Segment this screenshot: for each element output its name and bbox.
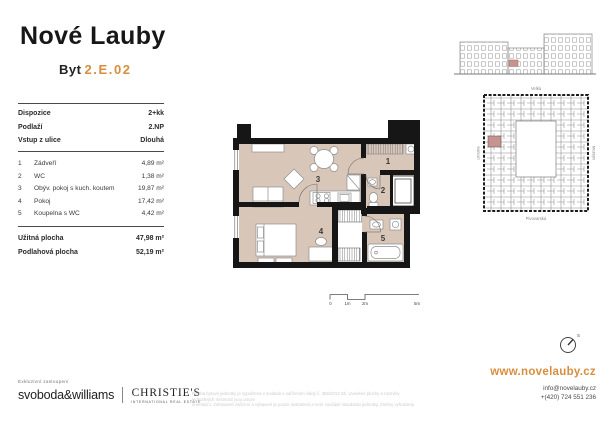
total-value: 52,19 m² — [136, 249, 164, 256]
email-link[interactable]: info@novelauby.cz — [436, 385, 596, 392]
brochure-page: Nové Lauby Byt2.E.02 Dispozice 2+kk Podl… — [0, 0, 600, 424]
street-left: Dlouhá — [477, 146, 481, 160]
highlighted-unit-siteplan — [488, 136, 501, 147]
room-number: 3 — [18, 185, 34, 192]
site-plan: Velká Pivovarská Dlouhá Muzejní — [477, 84, 595, 232]
plan-label-2: 2 — [381, 186, 386, 195]
svoboda-williams-logo: svoboda&williams — [18, 388, 114, 402]
meta-value: 2.NP — [148, 124, 164, 131]
scale-tick-2m: 2m — [362, 301, 368, 306]
unit-title: Byt2.E.02 — [59, 62, 132, 77]
disclaimer-line: orientační. Zobrazené zařízení a vybaven… — [192, 402, 418, 408]
disclaimer: Plocha bytové jednotky je vypočtena v so… — [192, 391, 418, 408]
meta-row: Vstup z ulice Dlouhá — [18, 134, 164, 147]
room-name: Koupelna s WC — [34, 210, 142, 217]
room-area: 19,87 m² — [138, 185, 164, 192]
kitchen-tall-unit — [347, 175, 360, 190]
highlighted-unit-elevation — [509, 60, 518, 67]
total-label: Podlahová plocha — [18, 249, 78, 256]
phone-link[interactable]: +(420) 724 551 236 — [436, 394, 596, 401]
compass-icon: S — [556, 331, 582, 357]
sideboard — [252, 144, 284, 152]
scale-tick-0: 0 — [329, 301, 332, 306]
disclaimer-line: Plocha bytové jednotky je vypočtena v so… — [192, 391, 418, 402]
room-number: 4 — [18, 198, 34, 205]
scale-tick-5m: 5m — [414, 301, 420, 306]
scale-bar: 0 1m 2m 5m — [328, 291, 423, 307]
agency-logos: Exkluzivní zastoupení svoboda&williams C… — [18, 379, 201, 404]
plan-label-3: 3 — [316, 175, 321, 184]
unit-number: 2.E.02 — [84, 62, 131, 77]
room-area: 4,42 m² — [142, 210, 164, 217]
total-label: Užitná plocha — [18, 235, 64, 242]
total-row: Užitná plocha 47,98 m² — [18, 231, 164, 245]
dining-table — [310, 147, 338, 172]
room-row: 4 Pokoj 17,42 m² — [18, 195, 164, 208]
logo-nove-lauby: Nové Lauby — [20, 22, 166, 51]
room-name: Zádveří — [34, 160, 142, 167]
building-elevation — [452, 20, 598, 84]
meta-row: Podlaží 2.NP — [18, 120, 164, 133]
room-row: 3 Obýv. pokoj s kuch. koutem 19,87 m² — [18, 182, 164, 195]
compass-north-label: S — [577, 333, 580, 338]
room-name: Pokoj — [34, 198, 138, 205]
street-bottom: Pivovarská — [526, 216, 547, 221]
meta-label: Dispozice — [18, 110, 51, 117]
plan-label-5: 5 — [381, 234, 386, 243]
meta-section: Dispozice 2+kk Podlaží 2.NP Vstup z ulic… — [18, 104, 164, 151]
room-number: 1 — [18, 160, 34, 167]
website-link[interactable]: www.novelauby.cz — [436, 366, 596, 378]
unit-label: Byt — [59, 62, 81, 77]
total-value: 47,98 m² — [136, 235, 164, 242]
plan-label-1: 1 — [386, 157, 391, 166]
meta-label: Podlaží — [18, 124, 43, 131]
room-name: WC — [34, 173, 142, 180]
rooms-section: 1 Zádveří 4,89 m² 2 WC 1,38 m² 3 Obýv. p… — [18, 152, 164, 226]
courtyard — [516, 121, 556, 177]
shaft — [392, 176, 414, 206]
scale-tick-1m: 1m — [344, 301, 350, 306]
meta-value: 2+kk — [148, 110, 164, 117]
room-number: 2 — [18, 173, 34, 180]
meta-row: Dispozice 2+kk — [18, 107, 164, 120]
plan-label-4: 4 — [319, 227, 324, 236]
meta-label: Vstup z ulice — [18, 137, 61, 144]
unit-info-table: Dispozice 2+kk Podlaží 2.NP Vstup z ulic… — [18, 103, 164, 263]
room-row: 1 Zádveří 4,89 m² — [18, 157, 164, 170]
christies-logo: CHRISTIE'S INTERNATIONAL REAL ESTATE — [131, 387, 201, 404]
total-row: Podlahová plocha 52,19 m² — [18, 245, 164, 259]
street-top: Velká — [531, 86, 542, 91]
room-number: 5 — [18, 210, 34, 217]
contact-block: www.novelauby.cz info@novelauby.cz +(420… — [436, 366, 596, 401]
room-area: 17,42 m² — [138, 198, 164, 205]
room-area: 1,38 m² — [142, 173, 164, 180]
elevation-blocks — [454, 34, 596, 74]
room-name: Obýv. pokoj s kuch. koutem — [34, 185, 138, 192]
totals-section: Užitná plocha 47,98 m² Podlahová plocha … — [18, 227, 164, 263]
entry-wardrobe — [367, 144, 403, 154]
street-right: Muzejní — [592, 146, 596, 161]
christies-subtitle: INTERNATIONAL REAL ESTATE — [131, 400, 201, 404]
room-area: 4,89 m² — [142, 160, 164, 167]
christies-wordmark: CHRISTIE'S — [131, 387, 201, 399]
room-row: 2 WC 1,38 m² — [18, 170, 164, 183]
exclusive-label: Exkluzivní zastoupení — [18, 379, 201, 384]
floorplan-drawing: 1 2 3 4 5 — [214, 112, 426, 290]
meta-value: Dlouhá — [140, 137, 164, 144]
logo-divider — [122, 387, 123, 403]
room-row: 5 Koupelna s WC 4,42 m² — [18, 208, 164, 221]
